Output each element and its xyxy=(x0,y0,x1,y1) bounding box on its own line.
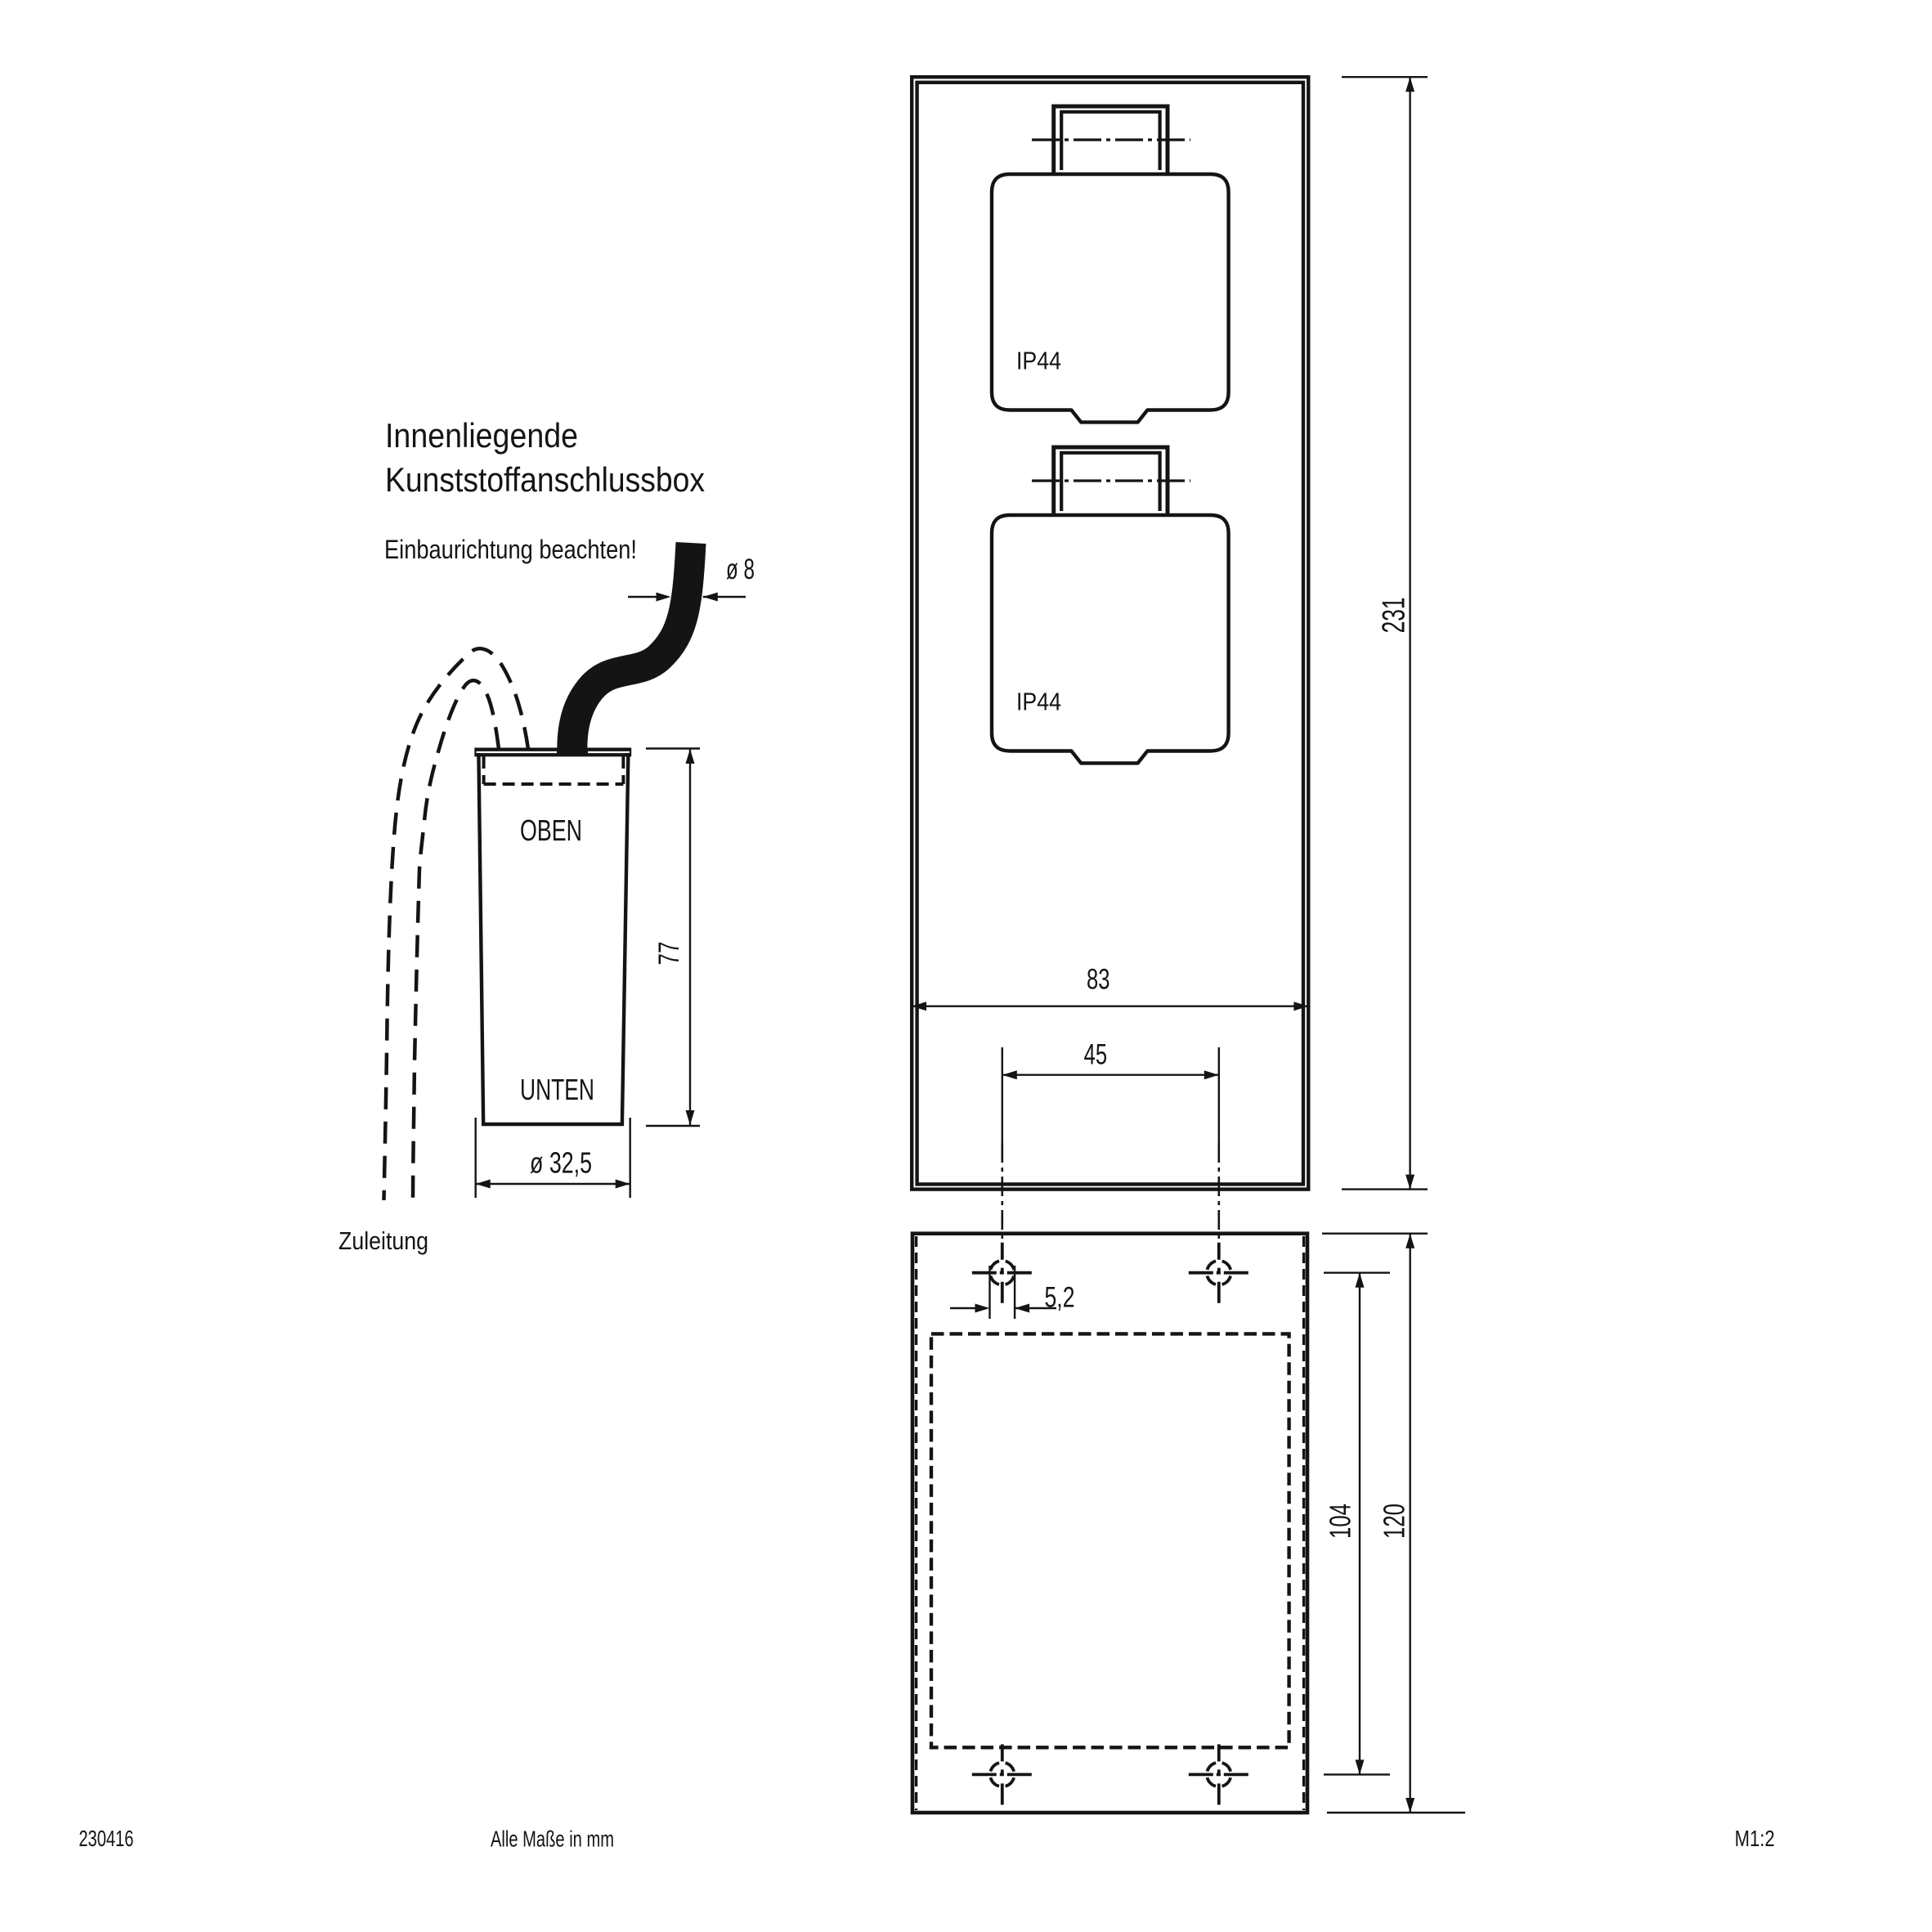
svg-text:IP44: IP44 xyxy=(1016,347,1061,375)
svg-text:UNTEN: UNTEN xyxy=(520,1073,594,1106)
svg-text:IP44: IP44 xyxy=(1016,688,1061,716)
svg-text:45: 45 xyxy=(1084,1038,1108,1070)
svg-text:Kunststoffanschlussbox: Kunststoffanschlussbox xyxy=(385,460,705,499)
svg-text:230416: 230416 xyxy=(78,1826,133,1851)
svg-text:Zuleitung: Zuleitung xyxy=(338,1226,428,1255)
svg-text:120: 120 xyxy=(1378,1504,1411,1539)
svg-text:ø 32,5: ø 32,5 xyxy=(530,1146,592,1180)
svg-text:Einbaurichtung beachten!: Einbaurichtung beachten! xyxy=(384,535,637,564)
svg-text:ø 8: ø 8 xyxy=(726,554,755,585)
svg-text:104: 104 xyxy=(1324,1504,1357,1539)
svg-text:83: 83 xyxy=(1087,963,1110,995)
svg-text:OBEN: OBEN xyxy=(520,814,582,847)
svg-text:Alle Maße in mm: Alle Maße in mm xyxy=(491,1827,614,1852)
svg-text:5,2: 5,2 xyxy=(1045,1282,1075,1314)
svg-text:M1:2: M1:2 xyxy=(1735,1826,1775,1851)
svg-text:Innenliegende: Innenliegende xyxy=(385,416,578,455)
svg-text:77: 77 xyxy=(653,942,685,966)
svg-text:231: 231 xyxy=(1376,597,1411,633)
